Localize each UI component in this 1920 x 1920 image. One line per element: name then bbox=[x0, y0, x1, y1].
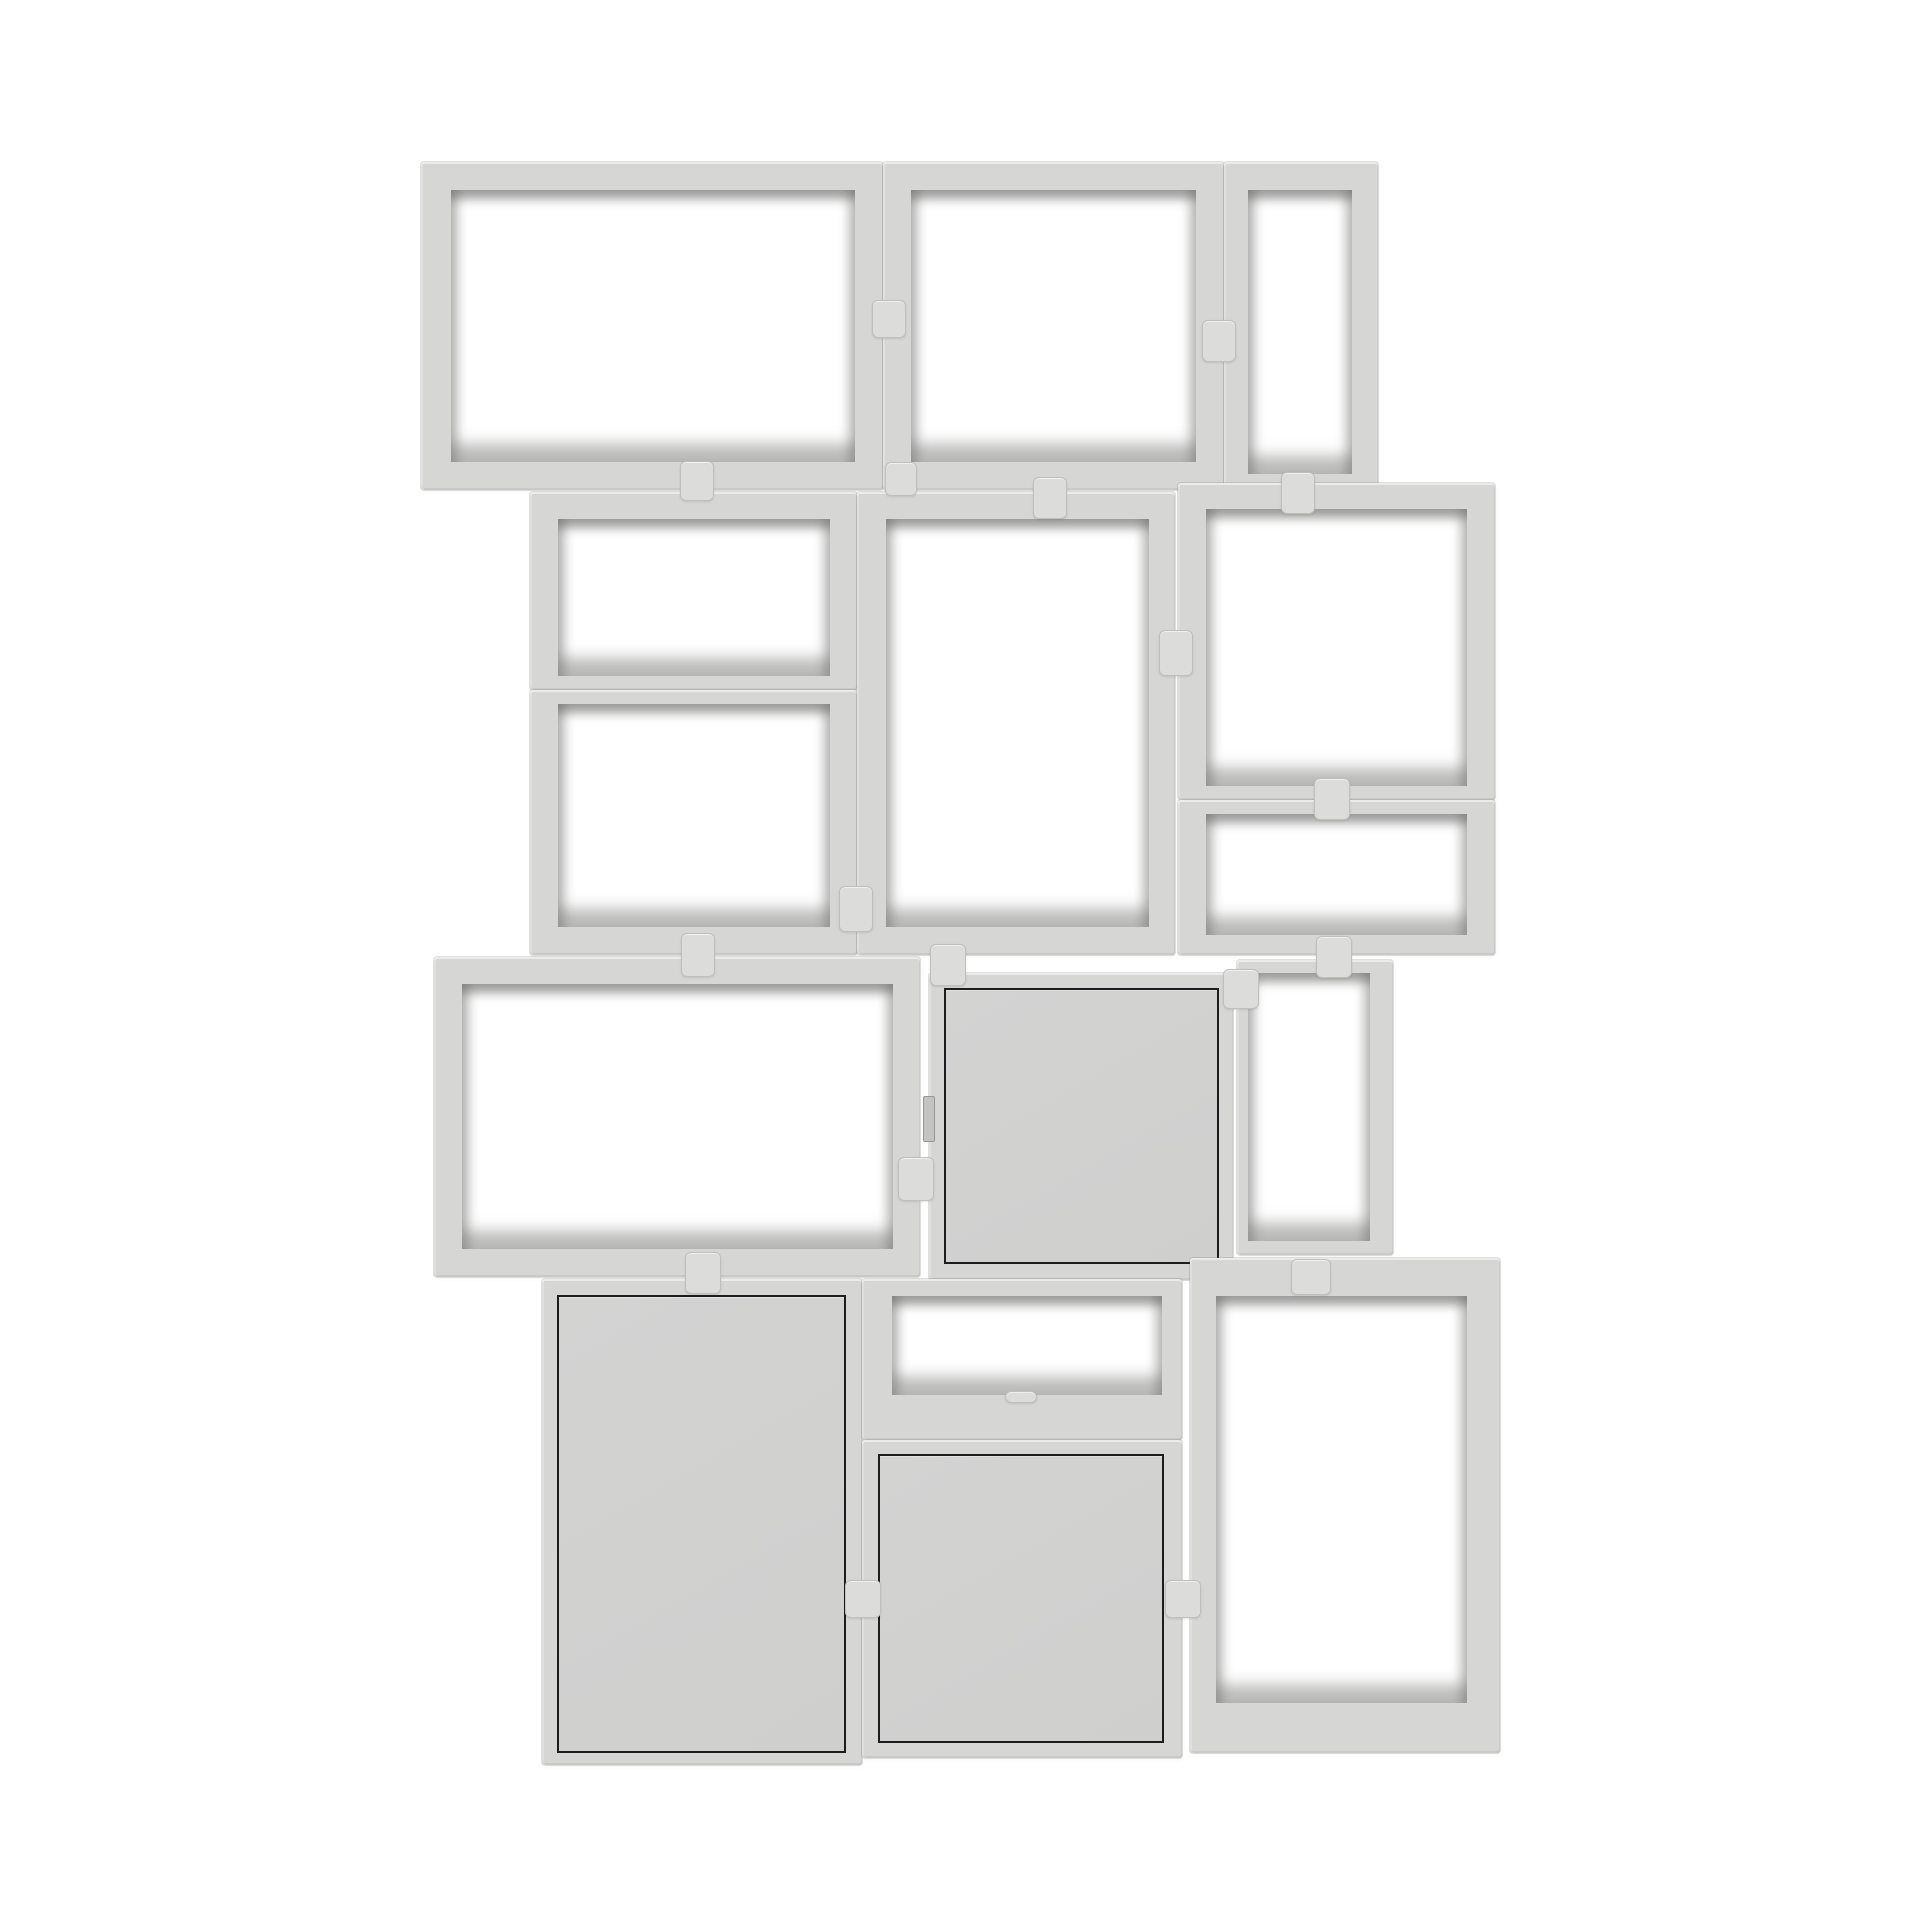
clip-row4-shelf-tab bbox=[1005, 1391, 1037, 1403]
module-opening bbox=[1216, 1296, 1467, 1703]
module-row2-right-short-open bbox=[1178, 800, 1495, 955]
module-row3-door-closed bbox=[929, 973, 1233, 1280]
module-opening bbox=[451, 190, 855, 462]
clip-row1-row2-left bbox=[680, 461, 714, 501]
module-row1-square-open bbox=[883, 162, 1224, 490]
module-row4-middle-shallow-open bbox=[862, 1279, 1182, 1440]
module-opening bbox=[886, 519, 1149, 927]
module-row2-left-bottom-open bbox=[530, 690, 857, 955]
clip-row3-right-joint bbox=[1223, 969, 1259, 1009]
module-opening bbox=[462, 984, 893, 1249]
shelving-unit bbox=[0, 0, 1920, 1920]
module-door bbox=[944, 988, 1219, 1264]
module-row1-wide-open bbox=[421, 162, 883, 490]
clip-row1-row2-mid2 bbox=[1033, 477, 1067, 519]
module-opening bbox=[558, 519, 830, 676]
module-row4-right-open bbox=[1190, 1258, 1500, 1753]
module-opening bbox=[911, 190, 1196, 462]
hinge-row3-door bbox=[923, 1096, 935, 1142]
product-photo bbox=[0, 0, 1920, 1920]
module-opening bbox=[1206, 509, 1467, 786]
clip-row2-mid-right-joint bbox=[1159, 630, 1193, 676]
module-opening bbox=[1248, 190, 1352, 474]
module-opening bbox=[892, 1296, 1162, 1395]
clip-row2-row3-mid bbox=[930, 944, 966, 986]
clip-row2-left-mid-joint bbox=[839, 886, 873, 932]
clip-row3-row4-right bbox=[1291, 1259, 1331, 1295]
module-row3-wide-open bbox=[434, 957, 920, 1277]
clip-row2-row3-right bbox=[1316, 936, 1352, 978]
module-row1-narrow-open bbox=[1224, 162, 1378, 502]
module-row2-middle-tall-open bbox=[857, 492, 1175, 955]
module-opening bbox=[1206, 814, 1467, 935]
module-door bbox=[878, 1454, 1164, 1743]
clip-row1-row2-right bbox=[1281, 472, 1315, 514]
clip-row3-row4-left bbox=[685, 1252, 721, 1294]
clip-row2-row3-left bbox=[681, 933, 715, 977]
clip-row4-right-joint bbox=[1165, 1580, 1201, 1618]
module-row2-left-top-open bbox=[530, 492, 857, 690]
clip-row1-left-joint bbox=[872, 300, 906, 338]
clip-row1-right-joint bbox=[1202, 320, 1236, 362]
module-row2-right-open bbox=[1178, 483, 1495, 800]
clip-row3-mid-joint bbox=[898, 1157, 934, 1201]
module-row4-left-door-closed bbox=[542, 1279, 862, 1765]
clip-row4-left-joint bbox=[845, 1580, 881, 1618]
module-row4-middle-door-closed bbox=[862, 1440, 1182, 1758]
module-row3-narrow-open bbox=[1237, 960, 1393, 1255]
module-opening bbox=[558, 704, 830, 927]
module-opening bbox=[1248, 973, 1370, 1241]
clip-row1-row2-mid1 bbox=[885, 462, 917, 496]
clip-row2-right-shelf bbox=[1314, 778, 1350, 820]
module-door bbox=[557, 1295, 846, 1753]
